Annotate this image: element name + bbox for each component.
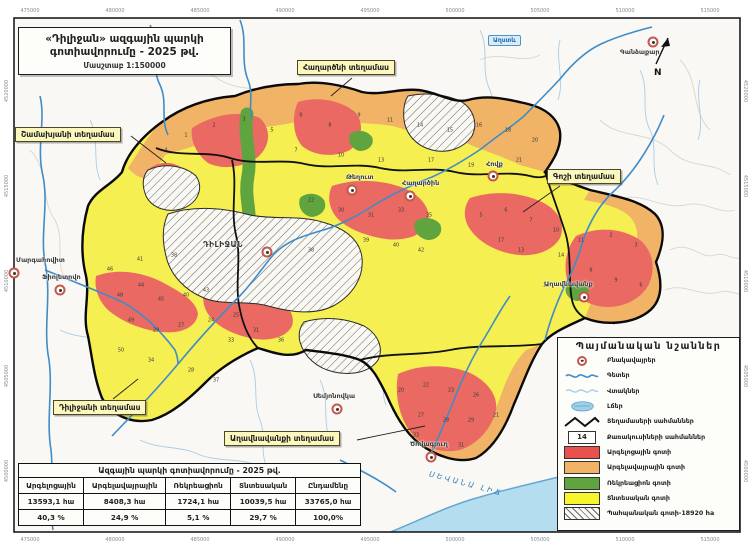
quadrat-number: 43 — [203, 289, 209, 294]
legend-item-label: Տնտեսական գոտի — [607, 495, 670, 502]
legend-item-icon — [562, 461, 602, 474]
grid-label-bottom: 490000 — [268, 537, 302, 543]
table-percent-cell: 40,3 % — [19, 509, 84, 525]
grid-label-bottom: 515000 — [693, 537, 727, 543]
quadrat-number: 3 — [634, 244, 637, 249]
settlement-name: Ծովագյուղ — [410, 440, 448, 448]
quadrat-number: 17 — [498, 239, 504, 244]
quadrat-number: 40 — [183, 294, 189, 299]
settlement-dot — [332, 404, 343, 415]
quadrat-number: 13 — [378, 159, 384, 164]
settlement-dot-center — [409, 195, 412, 198]
settlement-dot-center — [351, 189, 354, 192]
legend-item-icon — [562, 446, 602, 459]
quadrat-number: 44 — [138, 284, 144, 289]
quadrat-number: 16 — [476, 124, 482, 129]
quadrat-box-icon: 14 — [568, 431, 596, 444]
legend-item-label: Պահպանական գոտի-18920 ha — [607, 510, 714, 517]
map-sheet: 4750004800004850004900004950005000005050… — [0, 0, 752, 550]
legend-item: Ռեկրեացիոն գոտի — [562, 475, 735, 490]
settlement-dot-center — [583, 296, 586, 299]
quadrat-number: 8 — [589, 269, 592, 274]
north-arrow-head — [661, 38, 670, 47]
grid-label-top: 475000 — [13, 8, 47, 14]
quadrat-number: 26 — [473, 394, 479, 399]
quadrat-number: 1 — [184, 134, 187, 139]
grid-label-right: 4505000 — [742, 359, 748, 393]
quadrat-number: 10 — [338, 154, 344, 159]
settlement-name: Հովք — [486, 160, 503, 168]
quadrat-number: 25 — [233, 314, 239, 319]
table-area-cell: 8408,3 հա — [84, 493, 166, 509]
quadrat-number: 49 — [128, 319, 134, 324]
legend-item-label: Բնակավայրեր — [607, 357, 656, 364]
quadrat-number: 38 — [308, 249, 314, 254]
grid-label-top: 480000 — [98, 8, 132, 14]
section-label-box: Շամախյանի տեղամաս — [15, 127, 121, 142]
settlement-name: Թեղուտ — [346, 173, 374, 181]
settlement-name: ԴԻԼԻՋԱՆ — [203, 240, 243, 249]
legend-item-label: Արգելոցային գոտի — [607, 449, 671, 456]
river-name-label: Աղստև — [488, 35, 521, 46]
grid-label-top: 495000 — [353, 8, 387, 14]
quadrat-number: 37 — [213, 379, 219, 384]
legend-panel: Պայմանական նշաններ ԲնակավայրերԳետերՎտակն… — [557, 337, 740, 531]
table-percent-cell: 24,9 % — [84, 509, 166, 525]
legend-item-icon — [562, 507, 602, 520]
quadrat-number: 5 — [479, 214, 482, 219]
grid-label-bottom: 480000 — [98, 537, 132, 543]
legend-item: Վտակներ — [562, 384, 735, 399]
quadrat-number: 6 — [639, 284, 642, 289]
hatch-swatch-icon — [564, 507, 600, 520]
legend-item-label: Ռեկրեացիոն գոտի — [607, 480, 671, 487]
legend-item: Տեղամասերի սահմաններ — [562, 414, 735, 429]
settlement-dot-center — [336, 408, 339, 411]
legend-item-icon — [562, 400, 602, 413]
river-line-icon — [565, 371, 599, 381]
quadrat-number: 2 — [609, 234, 612, 239]
legend-item: 14Քառակուսիների սահմաններ — [562, 429, 735, 444]
grid-label-bottom: 510000 — [608, 537, 642, 543]
grid-label-right: 4510000 — [742, 264, 748, 298]
grid-label-right: 4520000 — [742, 74, 748, 108]
quadrat-number: 2 — [212, 124, 215, 129]
quadrat-number: 27 — [178, 324, 184, 329]
quadrat-number: 22 — [308, 199, 314, 204]
settlement-dot — [262, 247, 273, 258]
legend-item-label: Վտակներ — [607, 388, 639, 395]
table-percent-row: 40,3 %24,9 %5,1 %29,7 %100,0% — [19, 509, 360, 525]
legend-item-icon: 14 — [562, 431, 602, 444]
settlement-name: Ֆիոլետովո — [42, 273, 81, 281]
table-area-cell: 13593,1 հա — [19, 493, 84, 509]
legend-item-label: Գետեր — [607, 372, 630, 379]
quadrat-number: 27 — [418, 414, 424, 419]
quadrat-number: 4 — [164, 149, 167, 154]
quadrat-number: 28 — [443, 419, 449, 424]
table-header-row: ԱրգելոցայինԱրգելավայրայինՌեկրեացիոնՏնտես… — [19, 478, 360, 493]
legend-item: Արգելոցային գոտի — [562, 445, 735, 460]
section-label-box: Դիլիջանի տեղամաս — [53, 400, 146, 415]
zone-swatch-icon — [564, 492, 600, 505]
settlement-dot — [488, 171, 499, 182]
quadrat-number: 29 — [153, 329, 159, 334]
quadrat-number: 9 — [614, 279, 617, 284]
quadrat-number: 36 — [278, 339, 284, 344]
settlement-dot-center — [430, 456, 433, 459]
quadrat-number: 9 — [357, 114, 360, 119]
grid-label-left: 4500000 — [4, 454, 10, 488]
section-label-box: Աղավնավանքի տեղամաս — [224, 431, 340, 446]
quadrat-number: 8 — [328, 124, 331, 129]
quadrat-number: 23 — [448, 389, 454, 394]
table-area-row: 13593,1 հա8408,3 հա1724,1 հա10039,5 հա33… — [19, 493, 360, 509]
legend-items: ԲնակավայրերԳետերՎտակներԼճերՏեղամասերի սա… — [562, 353, 735, 521]
quadrat-number: 50 — [118, 349, 124, 354]
quadrat-number: 21 — [516, 159, 522, 164]
grid-label-left: 4520000 — [4, 74, 10, 108]
north-arrow: N — [642, 30, 678, 78]
grid-label-right: 4515000 — [742, 169, 748, 203]
zone-swatch-icon — [564, 461, 600, 474]
grid-label-top: 500000 — [438, 8, 472, 14]
settlement-name: Հաղարծին — [402, 179, 439, 187]
legend-item: Լճեր — [562, 399, 735, 414]
quadrat-number: 11 — [387, 119, 393, 124]
quadrat-number: 19 — [468, 164, 474, 169]
quadrat-number: 6 — [299, 114, 302, 119]
quadrat-number: 5 — [270, 129, 273, 134]
grid-label-bottom: 495000 — [353, 537, 387, 543]
grid-label-left: 4515000 — [4, 169, 10, 203]
quadrat-number: 20 — [532, 139, 538, 144]
quadrat-number: 13 — [518, 249, 524, 254]
quadrat-number: 7 — [294, 149, 297, 154]
quadrat-number: 22 — [423, 384, 429, 389]
quadrat-number: 14 — [558, 254, 564, 259]
table-area-cell: 1724,1 հա — [166, 493, 231, 509]
grid-label-top: 515000 — [693, 8, 727, 14]
table-header-cell: Ռեկրեացիոն — [166, 478, 231, 493]
quadrat-number: 31 — [253, 329, 259, 334]
grid-label-bottom: 485000 — [183, 537, 217, 543]
settlement-dot — [55, 285, 66, 296]
table-percent-cell: 29,7 % — [231, 509, 296, 525]
table-area-cell: 10039,5 հա — [231, 493, 296, 509]
table-title: Ազգային պարկի գոտիավորումը - 2025 թվ. — [19, 464, 360, 478]
legend-item-label: Քառակուսիների սահմաններ — [607, 434, 705, 441]
quadrat-number: 18 — [505, 129, 511, 134]
quadrat-number: 40 — [393, 244, 399, 249]
zoning-statistics-table: Ազգային պարկի գոտիավորումը - 2025 թվ. Ար… — [18, 463, 361, 526]
zone-swatch-icon — [564, 477, 600, 490]
legend-item: Արգելավայրային գոտի — [562, 460, 735, 475]
legend-item-label: Լճեր — [607, 403, 623, 410]
settlement-icon — [577, 356, 587, 366]
quadrat-number: 45 — [158, 298, 164, 303]
quadrat-number: 31 — [368, 214, 374, 219]
legend-item-icon — [562, 371, 602, 381]
zone-swatch-icon — [564, 446, 600, 459]
settlement-name: Սեմյոնովկա — [313, 392, 355, 400]
legend-item-icon — [562, 477, 602, 490]
settlement-dot — [579, 292, 590, 303]
grid-label-top: 485000 — [183, 8, 217, 14]
map-title-box: «Դիլիջան» ազգային պարկի գոտիավորումը - 2… — [18, 27, 231, 75]
legend-item-icon — [562, 386, 602, 396]
legend-item: Բնակավայրեր — [562, 353, 735, 368]
grid-label-left: 4505000 — [4, 359, 10, 393]
quadrat-number: 34 — [148, 359, 154, 364]
table-header-cell: Արգելավայրային — [84, 478, 166, 493]
settlement-dot-center — [59, 289, 62, 292]
quadrat-number: 15 — [447, 129, 453, 134]
table-area-cell: 33765,0 հա — [296, 493, 360, 509]
north-label: N — [654, 68, 662, 78]
map-title-line1: «Դիլիջան» ազգային պարկի — [22, 33, 227, 46]
section-boundary-icon — [563, 415, 601, 428]
settlement-dot-center — [13, 272, 16, 275]
quadrat-number: 21 — [493, 414, 499, 419]
quadrat-number: 38 — [171, 254, 177, 259]
grid-label-bottom: 500000 — [438, 537, 472, 543]
legend-item-icon — [562, 356, 602, 366]
quadrat-number: 42 — [418, 249, 424, 254]
settlement-name: Աղավնավանք — [544, 280, 593, 288]
settlement-dot — [405, 191, 416, 202]
quadrat-number: 33 — [413, 434, 419, 439]
grid-label-top: 505000 — [523, 8, 557, 14]
legend-item-label: Տեղամասերի սահմաններ — [607, 418, 694, 425]
table-header-cell: Արգելոցային — [19, 478, 84, 493]
quadrat-number: 33 — [228, 339, 234, 344]
table-header-cell: Տնտեսական — [231, 478, 296, 493]
quadrat-number: 6 — [504, 209, 507, 214]
legend-item-icon — [562, 415, 602, 428]
settlement-dot-center — [266, 251, 269, 254]
quadrat-number: 31 — [458, 444, 464, 449]
map-title-line2: գոտիավորումը - 2025 թվ. — [22, 46, 227, 59]
quadrat-number: 33 — [398, 209, 404, 214]
quadrat-number: 11 — [578, 239, 584, 244]
quadrat-number: 28 — [188, 369, 194, 374]
quadrat-number: 10 — [553, 229, 559, 234]
quadrat-number: 30 — [338, 209, 344, 214]
settlement-dot-center — [492, 175, 495, 178]
tributary-line-icon — [565, 386, 599, 396]
map-scale: Մասշտաբ 1:150000 — [22, 61, 227, 70]
quadrat-number: 29 — [468, 419, 474, 424]
quadrat-number: 35 — [426, 214, 432, 219]
quadrat-number: 14 — [417, 124, 423, 129]
quadrat-number: 48 — [117, 294, 123, 299]
quadrat-number: 41 — [137, 258, 143, 263]
quadrat-number: 24 — [208, 319, 214, 324]
legend-item-icon — [562, 492, 602, 505]
settlement-dot — [9, 268, 20, 279]
table-percent-cell: 100,0% — [296, 509, 360, 525]
legend-item: Տնտեսական գոտի — [562, 491, 735, 506]
settlement-name: Մարգահովիտ — [16, 256, 65, 264]
grid-label-bottom: 475000 — [13, 537, 47, 543]
legend-item: Գետեր — [562, 368, 735, 383]
quadrat-number: 17 — [428, 159, 434, 164]
quadrat-number: 20 — [398, 389, 404, 394]
section-label-box: Հաղարծնի տեղամաս — [297, 60, 395, 75]
grid-label-top: 510000 — [608, 8, 642, 14]
quadrat-number: 46 — [107, 268, 113, 273]
quadrat-number: 3 — [242, 118, 245, 123]
settlement-dot — [347, 185, 358, 196]
table-header-cell: Ընդամենը — [296, 478, 360, 493]
quadrat-number: 39 — [363, 239, 369, 244]
legend-title: Պայմանական նշաններ — [562, 341, 735, 352]
section-label-box: Գոշի տեղամաս — [547, 169, 621, 184]
settlement-dot — [426, 452, 437, 463]
table-percent-cell: 5,1 % — [166, 509, 231, 525]
quadrat-number: 7 — [529, 219, 532, 224]
legend-item: Պահպանական գոտի-18920 ha — [562, 506, 735, 521]
grid-label-right: 4500000 — [742, 454, 748, 488]
grid-label-top: 490000 — [268, 8, 302, 14]
lake-icon — [565, 400, 599, 413]
grid-label-bottom: 505000 — [523, 537, 557, 543]
legend-item-label: Արգելավայրային գոտի — [607, 464, 685, 471]
